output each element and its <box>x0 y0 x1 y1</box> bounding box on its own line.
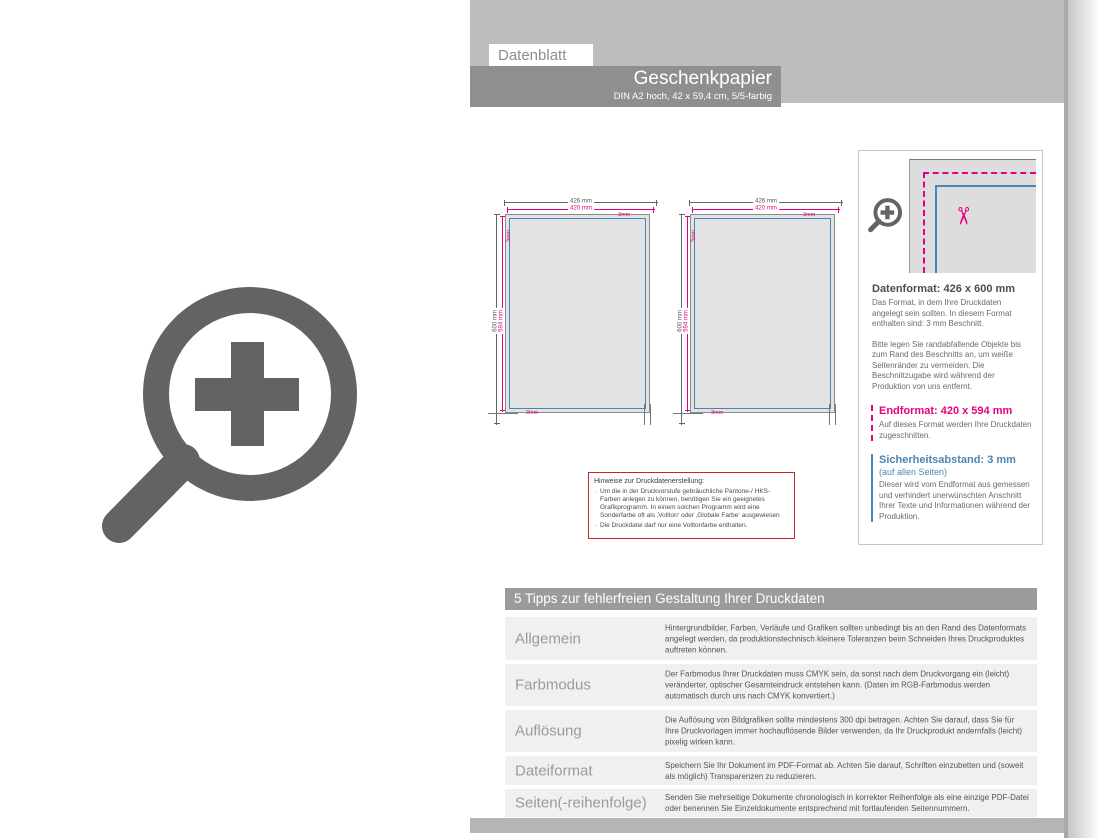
row-text: Speichern Sie Ihr Dokument im PDF-Format… <box>665 760 1029 782</box>
corner-zoom-illustration: ✂ <box>909 159 1036 273</box>
zoom-plus-icon <box>95 276 363 566</box>
row-label: Farbmodus <box>515 677 591 694</box>
datenformat-section: Datenformat: 426 x 600 mm Das Format, in… <box>872 283 1034 392</box>
row-text: Die Auflösung von Bildgrafiken sollte mi… <box>665 715 1029 748</box>
page-subtitle: DIN A2 hoch, 42 x 59,4 cm, 5/5-farbig <box>470 91 772 103</box>
extension-line <box>835 404 836 425</box>
page-title: Geschenkpapier <box>470 67 772 91</box>
title-bar: Geschenkpapier DIN A2 hoch, 42 x 59,4 cm… <box>470 66 781 107</box>
page-mockup: 3mm 3mm 3mm <box>505 214 650 413</box>
datenformat-text-2: Bitte legen Sie randabfallende Objekte b… <box>872 340 1034 393</box>
cut-line-vertical <box>923 172 925 273</box>
extension-line <box>673 413 703 414</box>
table-row: Dateiformat Speichern Sie Ihr Dokument i… <box>505 756 1037 785</box>
scissors-icon: ✂ <box>949 206 977 226</box>
extension-line <box>644 404 645 425</box>
row-text: Hintergrundbilder, Farben, Verläufe und … <box>665 622 1029 655</box>
row-label: Allgemein <box>515 630 581 647</box>
tips-table-header: 5 Tipps zur fehlerfreien Gestaltung Ihre… <box>505 588 1037 610</box>
bleed-label-left: 3mm <box>691 230 697 242</box>
dim-label-width-inner: 420 mm <box>753 206 779 213</box>
row-text: Senden Sie mehrseitige Dokumente chronol… <box>665 792 1029 814</box>
datenformat-title: Datenformat: 426 x 600 mm <box>872 283 1034 296</box>
bleed-label-bottom: 3mm <box>526 410 538 416</box>
hinweise-box: Hinweise zur Druckdatenerstellung: Um di… <box>588 472 795 539</box>
sicherheitsabstand-subtitle: (auf allen Seiten) <box>879 467 1034 478</box>
row-label: Dateiformat <box>515 762 593 779</box>
safety-border <box>694 218 831 409</box>
row-label: Auflösung <box>515 723 582 740</box>
zoom-plus-icon <box>867 197 903 235</box>
format-diagram-front: 426 mm 420 mm 600 mm 594 mm 3mm 3mm 3mm <box>486 196 666 436</box>
endformat-text: Auf dieses Format werden Ihre Druckdaten… <box>879 420 1034 441</box>
row-label: Seiten(-reihenfolge) <box>515 795 647 812</box>
datenblatt-tab: Datenblatt <box>489 44 593 67</box>
sicherheitsabstand-title: Sicherheitsabstand: 3 mm <box>879 454 1034 467</box>
safety-line-vertical <box>935 185 937 273</box>
row-text: Der Farbmodus Ihrer Druckdaten muss CMYK… <box>665 669 1029 702</box>
footer-band <box>470 818 1064 833</box>
hinweise-item: Die Druckdatei darf nur eine Volltonfarb… <box>594 522 789 530</box>
datenformat-text-1: Das Format, in dem Ihre Druckdaten angel… <box>872 298 1034 330</box>
dim-label-width-outer: 426 mm <box>753 199 779 206</box>
endformat-title: Endformat: 420 x 594 mm <box>879 405 1034 418</box>
bleed-label-left: 3mm <box>506 230 512 242</box>
endformat-section: Endformat: 420 x 594 mm Auf dieses Forma… <box>871 405 1034 441</box>
sicherheitsabstand-section: Sicherheitsabstand: 3 mm (auf allen Seit… <box>871 454 1034 522</box>
table-row: Farbmodus Der Farbmodus Ihrer Druckdaten… <box>505 664 1037 706</box>
extension-line <box>829 404 830 425</box>
format-diagram-back: 426 mm 420 mm 600 mm 594 mm 3mm 3mm 3mm <box>671 196 851 436</box>
cut-line-horizontal <box>923 172 1036 174</box>
hinweise-item: Um die in der Druckvorstufe gebräuchlich… <box>594 488 789 520</box>
safety-line-horizontal <box>935 185 1036 187</box>
dim-label-width-outer: 426 mm <box>568 199 594 206</box>
extension-line <box>650 404 651 425</box>
bleed-label-top: 3mm <box>803 212 815 218</box>
hinweise-title: Hinweise zur Druckdatenerstellung: <box>594 477 789 486</box>
page-edge-shadow <box>1068 0 1100 838</box>
bleed-label-bottom: 3mm <box>711 410 723 416</box>
table-row: Auflösung Die Auflösung von Bildgrafiken… <box>505 710 1037 752</box>
safety-border <box>509 218 646 409</box>
bleed-label-top: 3mm <box>618 212 630 218</box>
dim-label-width-inner: 420 mm <box>568 206 594 213</box>
sicherheitsabstand-text: Dieser wird vom Endformat aus gemessen u… <box>879 480 1034 522</box>
table-row: Seiten(-reihenfolge) Senden Sie mehrseit… <box>505 789 1037 817</box>
table-row: Allgemein Hintergrundbilder, Farben, Ver… <box>505 617 1037 660</box>
extension-line <box>488 413 518 414</box>
datasheet-canvas: Datenblatt Geschenkpapier DIN A2 hoch, 4… <box>0 0 1117 838</box>
page-mockup: 3mm 3mm 3mm <box>690 214 835 413</box>
format-legend-box: ✂ Datenformat: 426 x 600 mm Das Format, … <box>858 150 1043 545</box>
